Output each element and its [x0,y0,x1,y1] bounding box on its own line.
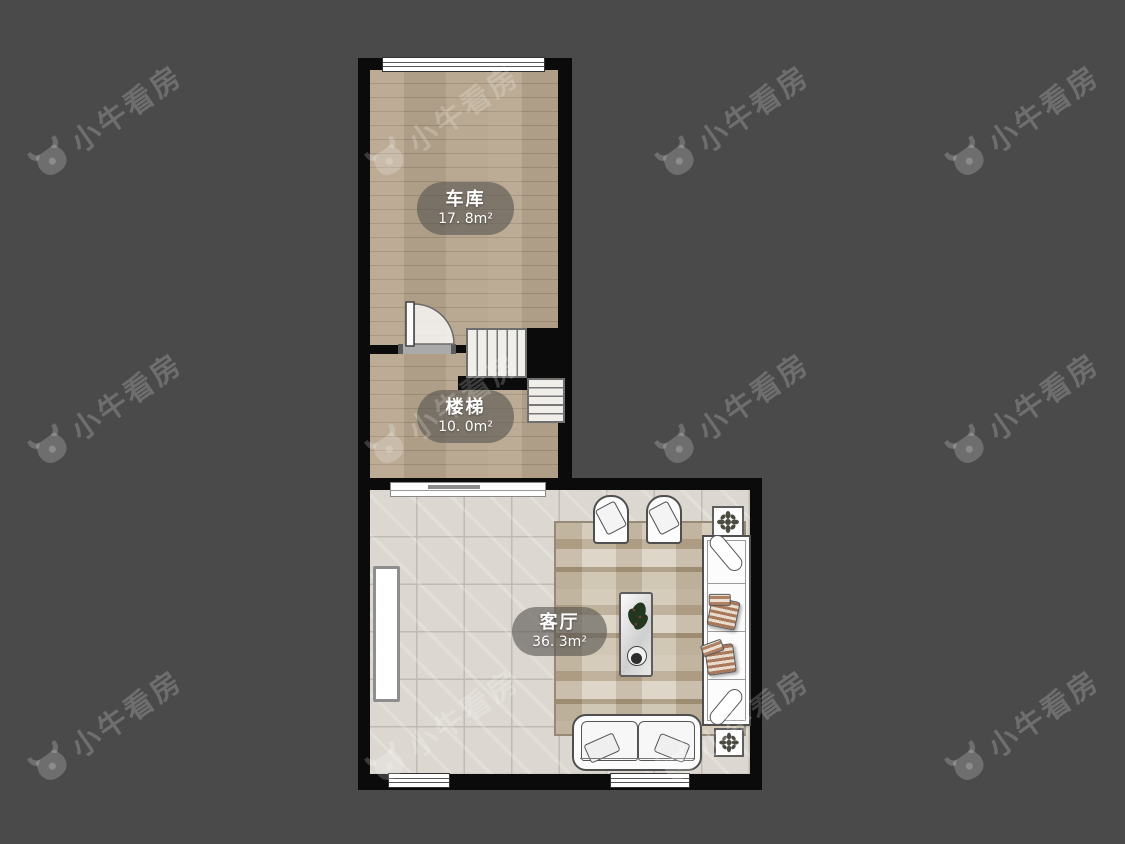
coffee-table [619,592,653,677]
watermark-text: 小牛看房 [978,53,1107,161]
bull-logo-icon [649,130,707,188]
living-window-left [388,773,450,788]
bull-logo-icon [22,735,80,793]
garage-top-window [382,57,545,72]
room-label-stairs: 楼梯 10. 0m² [417,390,514,443]
room-label-living: 客厅 36. 3m² [512,607,607,656]
plant-table-top [712,506,744,538]
watermark: 小牛看房 [649,53,817,188]
sofa-bottom [572,714,702,771]
watermark: 小牛看房 [22,53,190,188]
room-name: 客厅 [540,612,580,635]
armchair-right [646,495,682,544]
watermark: 小牛看房 [939,341,1107,476]
stairwell-wall-under [458,376,528,390]
room-name: 楼梯 [446,397,486,420]
watermark-text: 小牛看房 [978,341,1107,449]
plant-icon [714,508,742,536]
floorplan-canvas: 车库 17. 8m² 楼梯 10. 0m² 客厅 36. 3m² 小牛看房 [0,0,1125,844]
side-cabinet [373,566,400,702]
room-area: 17. 8m² [438,211,493,229]
bull-logo-icon [22,418,80,476]
watermark: 小牛看房 [22,658,190,793]
sliding-door [390,482,546,497]
bowl-icon [627,646,647,666]
watermark: 小牛看房 [22,341,190,476]
watermark: 小牛看房 [939,658,1107,793]
stairs-run-turn-icon [527,378,565,423]
stairs-run-up-icon [466,328,527,378]
plant-icon [716,730,742,755]
bull-logo-icon [939,418,997,476]
plant-table-bottom [714,728,744,757]
armchair-left [593,495,629,544]
watermark-text: 小牛看房 [61,658,190,766]
sofa-right [702,535,751,726]
watermark: 小牛看房 [649,341,817,476]
watermark-text: 小牛看房 [688,341,817,449]
door-swing-icon [398,298,458,348]
bull-logo-icon [649,418,707,476]
table-plant-icon [625,600,651,642]
living-window-right [610,773,690,788]
striped-pillow [704,643,737,676]
striped-pillow [706,596,740,630]
room-label-garage: 车库 17. 8m² [417,182,514,235]
watermark-text: 小牛看房 [61,53,190,161]
room-name: 车库 [446,189,486,212]
watermark-text: 小牛看房 [688,53,817,161]
bull-logo-icon [22,130,80,188]
bull-logo-icon [939,130,997,188]
bull-logo-icon [939,735,997,793]
room-area: 36. 3m² [532,634,587,652]
watermark-text: 小牛看房 [61,341,190,449]
room-area: 10. 0m² [438,419,493,437]
watermark: 小牛看房 [939,53,1107,188]
watermark-text: 小牛看房 [978,658,1107,766]
